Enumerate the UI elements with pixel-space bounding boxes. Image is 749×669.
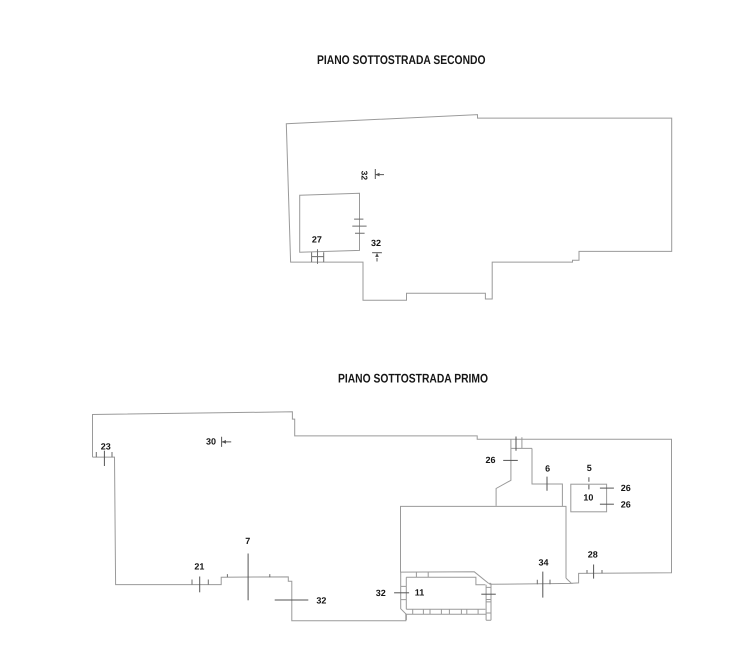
svg-text:PIANO SOTTOSTRADA PRIMO: PIANO SOTTOSTRADA PRIMO bbox=[338, 372, 488, 386]
svg-text:23: 23 bbox=[101, 441, 111, 451]
svg-text:32: 32 bbox=[376, 588, 386, 598]
svg-text:27: 27 bbox=[312, 235, 322, 245]
svg-text:PIANO SOTTOSTRADA SECONDO: PIANO SOTTOSTRADA SECONDO bbox=[317, 53, 486, 67]
svg-text:28: 28 bbox=[588, 550, 598, 560]
svg-text:7: 7 bbox=[245, 536, 250, 546]
svg-text:34: 34 bbox=[538, 557, 548, 567]
svg-text:21: 21 bbox=[194, 562, 204, 572]
svg-text:26: 26 bbox=[621, 499, 631, 509]
svg-text:11: 11 bbox=[415, 588, 425, 598]
svg-text:32: 32 bbox=[371, 238, 381, 248]
svg-text:32: 32 bbox=[360, 171, 370, 181]
svg-text:10: 10 bbox=[583, 492, 593, 502]
svg-text:26: 26 bbox=[485, 455, 495, 465]
svg-text:30: 30 bbox=[206, 437, 216, 447]
svg-text:5: 5 bbox=[587, 463, 592, 473]
svg-text:32: 32 bbox=[316, 596, 326, 606]
svg-text:26: 26 bbox=[621, 483, 631, 493]
svg-text:6: 6 bbox=[545, 463, 550, 473]
